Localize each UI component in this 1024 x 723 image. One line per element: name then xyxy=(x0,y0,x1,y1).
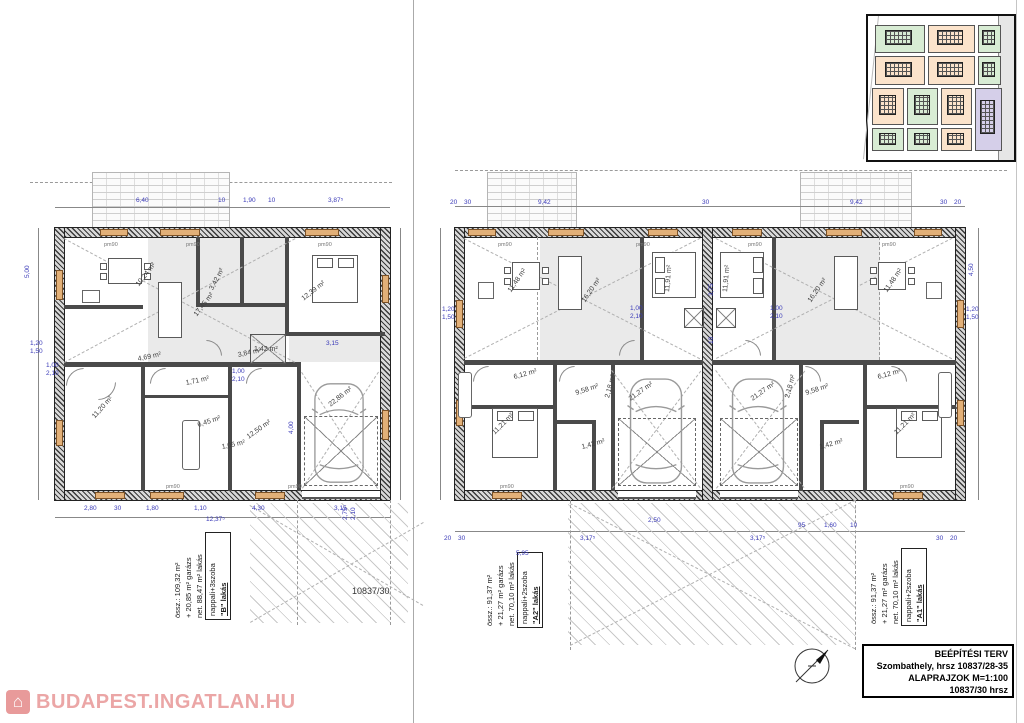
drawing-element xyxy=(390,500,391,625)
drawing-element xyxy=(914,229,942,236)
drawing-element xyxy=(400,228,401,500)
unit-b-title: "B" lakás xyxy=(218,536,229,616)
dimension-label: 9,42 xyxy=(850,199,863,206)
dimension-label: 30 xyxy=(114,505,121,512)
drawing-element xyxy=(636,465,677,469)
drawing-element xyxy=(957,300,964,328)
site-parcel xyxy=(975,88,1003,151)
drawing-element xyxy=(716,308,736,328)
unit-b-subtitle: nappali+3szoba xyxy=(207,536,218,616)
dimension-label: 3,87⁵ xyxy=(328,197,343,204)
drawing-element xyxy=(305,229,339,236)
site-parcel xyxy=(928,56,975,85)
drawing-element xyxy=(55,207,390,208)
dimension-label: 3,75 xyxy=(708,283,715,296)
drawing-element xyxy=(320,410,359,415)
garage-door xyxy=(302,491,380,499)
drawing-element xyxy=(66,368,84,386)
unit-a1-subtitle: nappali+2szoba xyxy=(903,552,914,622)
site-parcel xyxy=(875,56,925,85)
dimension-label: 3,17⁵ xyxy=(580,535,595,542)
dimension-label: 5,95 xyxy=(516,550,529,557)
unit-a2-net: net. 70,10 m² lakás xyxy=(506,552,517,628)
unit-a1-total: össz.: 91,37 m² xyxy=(868,548,879,626)
dimension-label: 20 xyxy=(950,535,957,542)
dimension-label: 9,42 xyxy=(538,199,551,206)
site-parcel xyxy=(978,56,1001,85)
drawing-element xyxy=(64,305,143,309)
drawing-element xyxy=(824,420,859,424)
site-parcel-building xyxy=(982,30,994,45)
drawing-element xyxy=(820,420,824,491)
drawing-element xyxy=(542,278,549,285)
drawing-element xyxy=(542,267,549,274)
terrace-a2 xyxy=(487,172,577,228)
drawing-element xyxy=(745,340,761,356)
drawing-element xyxy=(799,365,803,491)
drawing-element xyxy=(456,300,463,328)
dimension-label: 1,20 xyxy=(30,340,43,347)
bed xyxy=(312,255,358,303)
unit-b-total: össz.: 109,32 m² xyxy=(172,532,183,620)
dimension-label: 2,10 xyxy=(232,376,245,383)
site-parcel-building xyxy=(947,95,964,115)
drawing-element xyxy=(753,257,763,273)
unit-b-net: net. 88,47 m² lakás xyxy=(194,532,205,620)
unit-a2-garage: + 21,27 m² garázs xyxy=(495,552,506,628)
unit-a1-garage: + 21,27 m² garázs xyxy=(879,548,890,626)
watermark: ⌂ BUDAPEST.INGATLAN.HU xyxy=(6,690,296,714)
drawing-element xyxy=(636,407,677,412)
drawing-element xyxy=(150,368,166,384)
drawing-element xyxy=(320,465,359,469)
site-parcel xyxy=(928,25,975,54)
drawing-element xyxy=(652,252,696,298)
drawing-element xyxy=(240,237,244,305)
unit-a1-title: "A1" lakás xyxy=(914,552,925,622)
site-parcel xyxy=(875,25,925,54)
drawing-element xyxy=(285,237,289,336)
drawing-element xyxy=(559,366,575,382)
dimension-label: 1,00 xyxy=(770,305,783,312)
drawing-element xyxy=(455,170,1007,171)
window-size-label: pm90 xyxy=(288,484,302,490)
dimension-label: 2,10 xyxy=(350,507,357,520)
drawing-element xyxy=(908,278,915,285)
drawing-element xyxy=(738,407,779,412)
dimension-label: 1,50 xyxy=(966,314,979,321)
drawing-element xyxy=(772,237,776,363)
drawing-element xyxy=(640,237,644,363)
drawing-element xyxy=(738,465,779,469)
drawing-sheet: 10837/30 össz.: 109,32 m² + 20,85 m² gar… xyxy=(0,0,1024,723)
site-parcel-building xyxy=(914,133,931,145)
site-parcel-building xyxy=(879,95,896,115)
dimension-label: 30 xyxy=(702,199,709,206)
dimension-label: 20 xyxy=(444,535,451,542)
dimension-label: 10 xyxy=(268,197,275,204)
window-size-label: pm90 xyxy=(186,242,200,248)
drawing-element xyxy=(338,258,354,268)
unit-a2-subtitle: nappali+2szoba xyxy=(519,556,530,624)
site-parcel xyxy=(907,128,938,151)
drawing-element: nappali+2szoba "A2" lakás xyxy=(517,552,543,628)
drawing-element xyxy=(978,228,979,500)
site-parcel xyxy=(978,25,1001,54)
drawing-element xyxy=(100,263,107,270)
window-size-label: pm90 xyxy=(166,484,180,490)
bathtub xyxy=(182,420,200,470)
dimension-label: 2,10 xyxy=(46,370,59,377)
drawing-element xyxy=(473,366,489,382)
unit-label-a2: össz.: 91,37 m² + 21,27 m² garázs net. 7… xyxy=(484,552,543,628)
drawing-element xyxy=(548,229,584,236)
garage-door-a2 xyxy=(618,491,696,499)
window-size-label: pm90 xyxy=(500,484,514,490)
drawing-element xyxy=(908,267,915,274)
drawing-element xyxy=(557,420,592,424)
dimension-label: 5,00 xyxy=(24,265,31,278)
window-marker xyxy=(100,229,128,236)
site-parcel-building xyxy=(980,100,995,134)
dimension-label: 3,15 xyxy=(326,340,339,347)
window-size-label: pm90 xyxy=(748,242,762,248)
garage-door-a1 xyxy=(720,491,798,499)
dimension-label: 30 xyxy=(936,535,943,542)
driveway-hatch xyxy=(250,503,408,623)
sofa xyxy=(158,282,182,338)
drawing-element xyxy=(455,206,965,207)
drawing-element xyxy=(922,411,938,421)
drawing-element xyxy=(297,362,301,491)
unit-a1-net: net. 70,10 m² lakás xyxy=(890,548,901,626)
drawing-element xyxy=(648,229,678,236)
drawing-element xyxy=(684,308,704,328)
drawing-element xyxy=(440,228,441,500)
unit-a2-total: össz.: 91,37 m² xyxy=(484,552,495,628)
dimension-label: 2,50 xyxy=(648,517,661,524)
drawing-element xyxy=(753,278,763,294)
site-parcel-building xyxy=(947,133,964,145)
dimension-label: 2,10 xyxy=(770,313,783,320)
drawing-element xyxy=(246,368,262,384)
terrace xyxy=(92,172,230,228)
dimension-label: 30 xyxy=(458,535,465,542)
dimension-label: 30 xyxy=(940,199,947,206)
dimension-label: 2,75 xyxy=(342,507,349,520)
dimension-label: 1,00 xyxy=(630,305,643,312)
drawing-element xyxy=(732,229,762,236)
drawing-element xyxy=(558,256,582,310)
drawing-element xyxy=(56,270,63,300)
dimension-label: 2,80 xyxy=(84,505,97,512)
dimension-label: 1,00 xyxy=(46,362,59,369)
unit-label-a1: össz.: 91,37 m² + 21,27 m² garázs net. 7… xyxy=(868,548,927,626)
drawing-element xyxy=(826,229,862,236)
drawing-element xyxy=(492,492,522,499)
unit-a2-title: "A2" lakás xyxy=(530,556,541,624)
drawing-element: nappali+3szoba "B" lakás xyxy=(205,532,231,620)
parcel-number-label: 10837/30 xyxy=(352,586,390,596)
title-block: BEÉPÍTÉSI TERV Szombathely, hrsz 10837/2… xyxy=(862,644,1014,698)
window-size-label: pm90 xyxy=(498,242,512,248)
drawing-element xyxy=(870,278,877,285)
drawing-element xyxy=(150,492,184,499)
drawing-element xyxy=(553,365,557,491)
site-parcel-building xyxy=(885,30,913,45)
north-compass xyxy=(786,640,838,692)
drawing-element xyxy=(504,267,511,274)
drawing-element xyxy=(285,332,385,336)
drawing-element xyxy=(56,420,63,446)
dimension-label: 1,10 xyxy=(194,505,207,512)
title-block-line1: BEÉPÍTÉSI TERV xyxy=(864,648,1008,660)
drawing-element xyxy=(468,229,496,236)
dimension-label: 2,10 xyxy=(630,313,643,320)
dimension-label: 10 xyxy=(708,337,715,344)
title-block-line2: Szombathely, hrsz 10837/28-35 xyxy=(864,660,1008,672)
watermark-text: BUDAPEST.INGATLAN.HU xyxy=(36,691,296,714)
drawing-element xyxy=(382,410,389,440)
site-parcel xyxy=(941,128,972,151)
drawing-element xyxy=(95,492,125,499)
party-wall xyxy=(703,228,712,500)
site-parcel-building xyxy=(885,62,913,77)
drawing-element xyxy=(957,400,964,426)
site-parcel xyxy=(872,128,904,151)
drawing-element xyxy=(805,366,821,382)
drawing-element xyxy=(537,237,538,360)
unit-b-garage: + 20,85 m² garázs xyxy=(183,532,194,620)
drawing-element xyxy=(879,237,880,360)
site-parcel-building xyxy=(914,95,931,115)
dimension-label: 95 xyxy=(798,522,805,529)
drawing-element xyxy=(592,420,596,491)
dimension-label: 1,90 xyxy=(243,197,256,204)
dimension-label: 6,40 xyxy=(136,197,149,204)
site-parcel xyxy=(872,88,904,125)
dimension-label: 1,00 xyxy=(232,368,245,375)
dimension-label: 30 xyxy=(464,199,471,206)
dimension-label: 4,30 xyxy=(252,505,265,512)
dimension-label: 20 xyxy=(954,199,961,206)
drawing-element xyxy=(478,282,494,299)
title-block-line3: ALAPRAJZOK M=1:100 xyxy=(864,672,1008,684)
dimension-label: 20 xyxy=(450,199,457,206)
dimension-label: 1,20 xyxy=(966,306,979,313)
drawing-element xyxy=(144,395,228,398)
drawing-element xyxy=(141,362,145,491)
dimension-label: 1,50 xyxy=(30,348,43,355)
drawing-element xyxy=(956,228,965,500)
drawing-element xyxy=(834,256,858,310)
window-size-label: pm90 xyxy=(882,242,896,248)
dimension-label: 4,50 xyxy=(968,263,975,276)
site-parcel-building xyxy=(879,133,896,145)
dimension-label: 10 xyxy=(850,522,857,529)
floor-plan-left: 10837/30 össz.: 109,32 m² + 20,85 m² gar… xyxy=(0,0,413,723)
drawing-element xyxy=(570,500,571,650)
living-a1-shading xyxy=(772,237,880,360)
drawing-element xyxy=(893,492,923,499)
site-parcel xyxy=(907,88,938,125)
drawing-element xyxy=(518,411,534,421)
dimension-label: 12,37⁵ xyxy=(206,516,225,523)
unit-label-b: össz.: 109,32 m² + 20,85 m² garázs net. … xyxy=(172,532,231,620)
site-parcel-building xyxy=(982,62,994,77)
drawing-element xyxy=(870,267,877,274)
drawing-element xyxy=(938,372,952,418)
window-size-label: pm90 xyxy=(104,242,118,248)
drawing-element xyxy=(160,229,200,236)
dimension-label: 1,80 xyxy=(146,505,159,512)
site-parcel xyxy=(941,88,972,125)
dimension-label: 10 xyxy=(218,197,225,204)
window-size-label: pm90 xyxy=(318,242,332,248)
drawing-element xyxy=(458,372,472,418)
drawing-element xyxy=(38,228,39,500)
drawing-element xyxy=(381,228,390,500)
drawing-element xyxy=(382,275,389,303)
drawing-element xyxy=(100,273,107,280)
drawing-element xyxy=(655,257,665,273)
dimension-label: 1,50 xyxy=(442,314,455,321)
site-plan-inset xyxy=(866,14,1016,162)
dimension-label: 3,17⁵ xyxy=(750,535,765,542)
car xyxy=(622,375,690,487)
drawing-element xyxy=(317,258,333,268)
window-size-label: pm90 xyxy=(636,242,650,248)
site-parcel-building xyxy=(937,62,963,77)
drawing-element xyxy=(926,282,942,299)
dimension-label: 4,00 xyxy=(288,421,295,434)
drawing-element xyxy=(896,408,942,458)
drawing-element xyxy=(863,365,867,491)
drawing-element: nappali+2szoba "A1" lakás xyxy=(901,548,927,626)
drawing-element xyxy=(464,360,703,365)
stove xyxy=(82,290,100,303)
site-parcel-building xyxy=(937,30,963,45)
house-icon: ⌂ xyxy=(6,690,30,714)
title-block-line4: 10837/30 hrsz xyxy=(864,684,1008,696)
dimension-label: 1,20 xyxy=(442,306,455,313)
drawing-element xyxy=(455,228,464,500)
window-size-label: pm90 xyxy=(900,484,914,490)
drawing-element xyxy=(297,500,298,625)
drawing-element xyxy=(255,492,285,499)
dimension-label: 1,60 xyxy=(824,522,837,529)
drawing-element xyxy=(712,360,956,365)
